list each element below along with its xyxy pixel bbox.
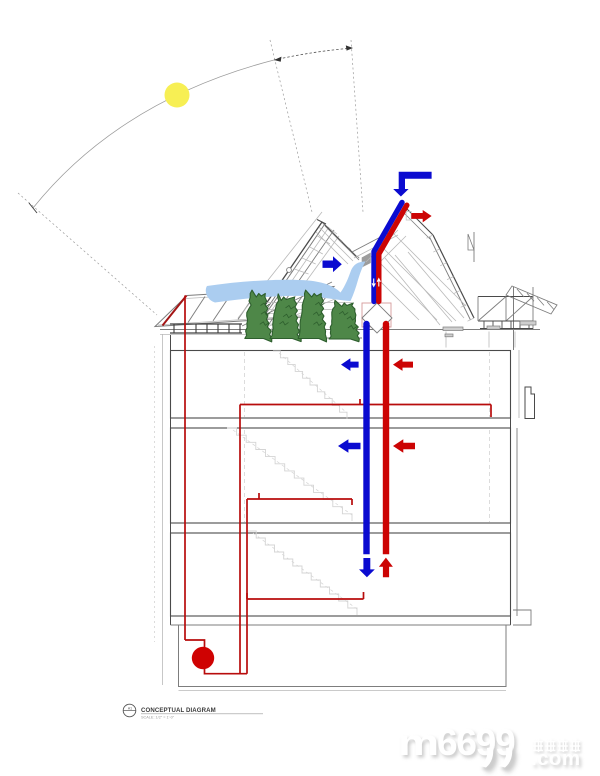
svg-text:m: m (398, 721, 439, 763)
svg-text:CONCEPTUAL DIAGRAM: CONCEPTUAL DIAGRAM (141, 707, 216, 714)
svg-text:SCALE: 1/2" = 1'-0": SCALE: 1/2" = 1'-0" (141, 716, 175, 720)
svg-text:A1: A1 (128, 707, 132, 711)
svg-text:6699: 6699 (437, 722, 515, 763)
svg-text:.com: .com (531, 747, 580, 770)
